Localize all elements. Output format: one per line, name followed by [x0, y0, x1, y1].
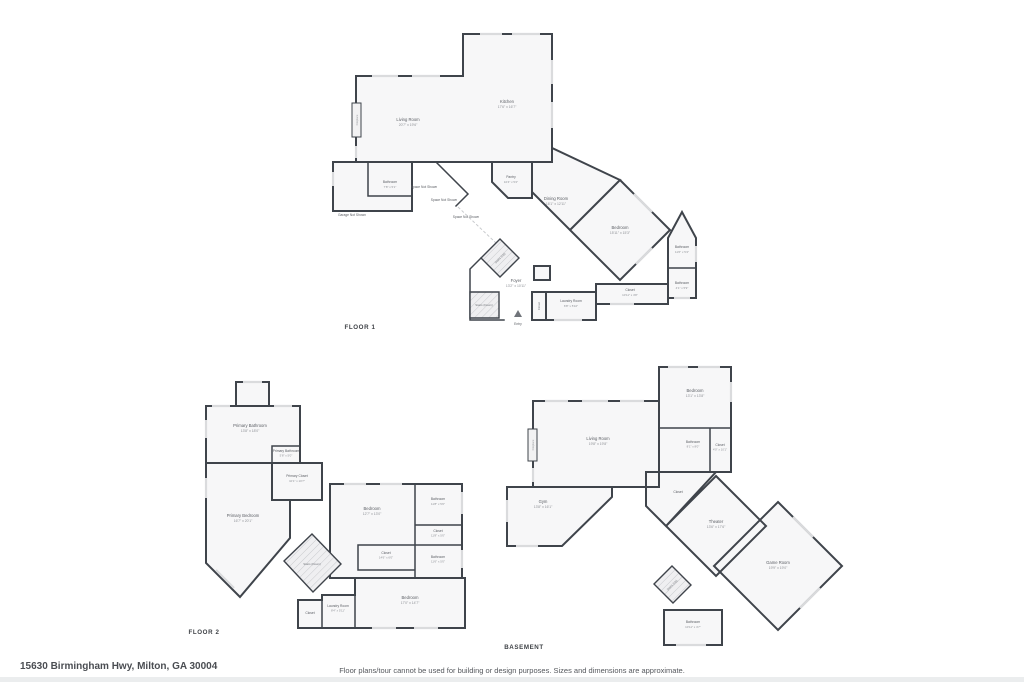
room-dims: 11'8" x 5'0" [431, 534, 445, 538]
room-name: Closet [625, 288, 634, 292]
room-dims: 13'2" x 10'11" [506, 284, 527, 288]
room-dims: 20'7" x 19'6" [399, 123, 418, 127]
room-dims: 11'8" x 5'0" [431, 502, 445, 506]
stairs-down-label: Stairs (Down) [475, 303, 493, 307]
room-dims: 14'6" x 6'0" [379, 556, 393, 560]
room-name: Pantry [506, 175, 516, 179]
floorplan-page: Living Room 20'7" x 19'6" Kitchen 17'6" … [0, 0, 1024, 682]
disclaimer-text: Floor plans/tour cannot be used for buil… [0, 666, 1024, 675]
room-dims: 16'1" x 12'11" [546, 202, 567, 206]
room-dims: 13'8" x 16'1" [534, 505, 553, 509]
room-name: Primary Closet [286, 474, 308, 478]
floor-2-walls [206, 382, 465, 628]
room-dims: 11'6" x 5'0" [431, 560, 445, 564]
room-name: Bathroom [675, 245, 690, 249]
room-dims: 11'6" x 5'4" [675, 250, 689, 254]
fireplace-label: Fireplace [531, 439, 535, 450]
room-name: Bedroom [612, 225, 630, 230]
room-dims: 13'8" x 18'0" [241, 429, 260, 433]
room-name: Bedroom [364, 506, 382, 511]
room-dims: 5'8" x 5'0" [280, 454, 293, 458]
room-name: Garage Not Shown [338, 213, 366, 217]
floor-label: FLOOR 1 [344, 324, 375, 331]
bottom-strip [0, 677, 1024, 682]
floor-2-plan: Primary Bathroom 13'8" x 18'0" Primary B… [188, 382, 465, 636]
room-dims: 13'1" x 13'8" [686, 394, 705, 398]
room-name: Primary Bathroom [233, 423, 267, 428]
room-name: Bathroom [686, 620, 701, 624]
room-dims: 15'11" x 15'3" [610, 231, 631, 235]
room-name: Living Room [396, 117, 420, 122]
room-dims: 17'0" x 14'7" [401, 601, 420, 605]
room-dims: 12'7" x 13'0" [363, 512, 382, 516]
stairs-down-label: Stairs (Down) [303, 562, 321, 566]
floorplan-svg: Living Room 20'7" x 19'6" Kitchen 17'6" … [0, 0, 1024, 682]
room-name: Closet [433, 529, 442, 533]
room-dims: 19'9" x 19'0" [769, 566, 788, 570]
room-name: Primary Bedroom [227, 513, 260, 518]
room-dims: 4'0" x 10'1" [713, 448, 727, 452]
room-name: Bathroom [431, 555, 446, 559]
room-dims: 4'1" x 5'9" [676, 286, 689, 290]
room-name: Dining Room [544, 196, 569, 201]
room-name: Bathroom [431, 497, 446, 501]
room-dims: 10'11" x 4'7" [685, 625, 701, 629]
room-dims: 7'8" x 5'1" [384, 185, 397, 189]
basement-walls [507, 367, 842, 645]
room-dims: 10'1" x 10'7" [289, 479, 305, 483]
room-name: Space Not Shown [431, 198, 458, 202]
room-dims: 17'6" x 16'7" [498, 105, 517, 109]
room-dims: 6'8" x 5'10" [564, 304, 578, 308]
floor-label: FLOOR 2 [188, 629, 219, 636]
floor-1-open-boundary [458, 207, 496, 243]
room-name: Theater [709, 519, 724, 524]
room-dims: 10'4" x 5'2" [504, 180, 518, 184]
room-dims: 8'4" x 5'11" [331, 609, 345, 613]
room-name: Laundry Room [327, 604, 349, 608]
floor-label: BASEMENT [504, 644, 544, 651]
closet-label: Closet [673, 490, 682, 494]
room-dims: 13'6" x 17'6" [707, 525, 726, 529]
room-name: Kitchen [500, 99, 515, 104]
room-name: Laundry Room [560, 299, 582, 303]
room-name: Living Room [586, 436, 610, 441]
fireplace-label: Fireplace [355, 114, 359, 125]
basement-plan: Bedroom 13'1" x 13'8" Bathroom 8'1" x 8'… [504, 367, 842, 651]
entry-arrow-icon [514, 310, 522, 317]
closet-label: Closet [305, 611, 314, 615]
room-dims: 16'7" x 20'1" [234, 519, 253, 523]
room-name: Space Not Shown [453, 215, 480, 219]
room-name: Primary Bathroom [273, 449, 300, 453]
room-dims: 10'11" x 4'8" [622, 293, 638, 297]
room-name: Bathroom [675, 281, 690, 285]
room-name: Gym [539, 499, 548, 504]
closet-label: Closet [537, 302, 541, 310]
room-name: Bathroom [383, 180, 398, 184]
room-name: Bathroom [686, 440, 701, 444]
entry-label: Entry [514, 322, 522, 326]
room-name: Bedroom [402, 595, 420, 600]
room-name: Space Not Shown [411, 185, 438, 189]
room-name: Bedroom [687, 388, 705, 393]
room-dims: 19'8" x 19'8" [589, 442, 608, 446]
room-dims: 8'1" x 8'0" [687, 445, 700, 449]
room-name: Closet [381, 551, 390, 555]
room-name: Game Room [766, 560, 790, 565]
floor-1-plan: Living Room 20'7" x 19'6" Kitchen 17'6" … [333, 34, 696, 331]
room-name: Foyer [511, 278, 522, 283]
room-name: Closet [715, 443, 724, 447]
